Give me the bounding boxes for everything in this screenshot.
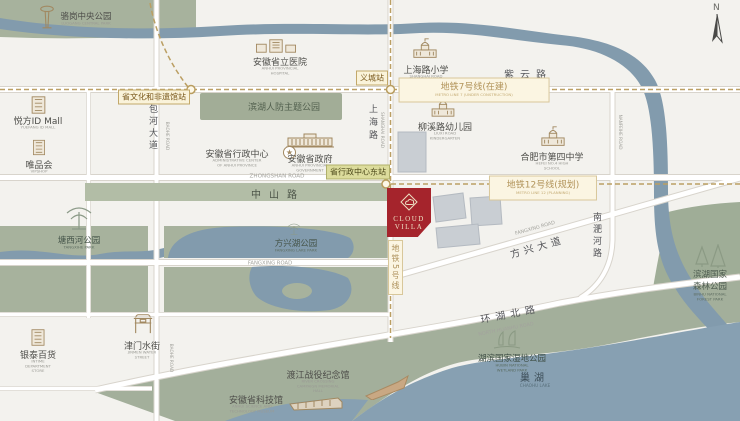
yuefang-mall-label-en: YUEFANG ID MALL [16,125,60,130]
forest-park-label-en: BINHU NATIONAL FOREST PARK [690,292,730,302]
intime-store-icon [29,328,47,347]
yuefang-mall-icon [29,95,48,115]
metro-line7-en: METRO LINE 7 (UNDER CONSTRUCTION) [435,93,512,97]
forest-park-label: 滨湖国家森林公园 [691,268,729,292]
tangxihe-park-label-en: TANGXIHE PARK [57,245,101,250]
jinmen-street-label-en: JINMEN WATER STREET [126,350,159,360]
map-base-graphics [0,0,740,421]
chaohu-lake-label-en: CHAOHU LAKE [520,384,550,389]
station-wenhua-badge: 省文化和非遗馆站 [118,90,190,105]
fangxinghu-park-label-en: FANGXING LAKE PARK [271,248,321,253]
hospital-label-en: ANHUI PROVINCIAL HOSPITAL [258,66,302,76]
intime-store-label-en: INTIME DEPARTMENT STORE [19,359,58,373]
luogang-park-label-en: LUOGANG CENTRAL PARK [56,21,117,26]
cloud-villa-logo-icon [400,193,418,211]
metro-line12-zh: 地铁12号线(规划) [494,178,592,191]
nanfeihe-road-label: 南淝河路 [590,212,603,260]
zhongshan-road-label-en: ZHONGSHAN ROAD [250,173,305,179]
baohe-road-label-en-2: BAOHE ROAD [169,344,174,372]
compass-n-label: N [713,3,720,13]
fangxinghu-pavilion-icon [283,221,305,236]
shanghai-road-label: 上海路 [366,104,379,143]
admin-center-label-en: ADMINISTRATIVE CENTER OF ANHUI PROVINCE [211,158,263,168]
station-yicheng-badge: 义城站 [356,71,388,86]
memorial-hall-label-en: RIVER CROSSING CAMPAIGN MEMORIAL HALL [293,379,343,393]
cloud-villa-badge: CLOUD VILLA [387,188,431,237]
tangxihe-pavilion-icon [64,202,94,232]
cloud-villa-text-line1: CLOUD [387,215,431,223]
luogang-tower-icon [38,2,56,32]
no4-school-label-en: HEFEI NO.4 HIGH SCHOOL [533,161,572,171]
shanghai-road-label-en: SHANGHAI ROAD [380,112,385,148]
metro-line12-en: METRO LINE 12 (PLANNING) [516,191,570,195]
nanfeihe-road-label-en: NANFEIHE ROAD [618,115,623,150]
metro-line12-label: 地铁12号线(规划) METRO LINE 12 (PLANNING) [489,176,597,201]
chaohu-lake-label: 巢湖 [520,369,548,384]
fangxing-road-label-en: FANGXING ROAD [248,260,292,266]
no4-school-icon [540,126,566,148]
government-icon [286,132,334,148]
zhongshan-road-label: 中山路 [251,186,305,201]
memorial-hall-icon [364,374,410,400]
primary-school-icon [412,38,438,60]
location-map[interactable]: ★ 骆岗中央公园 LUOGANG CENTRAL PARK 滨湖人防主题公园 塘… [0,0,740,421]
science-museum-label-en: ANHUI SCIENCE AND TECHNOLOGY MUSEUM [227,404,277,414]
vipshop-label-en: VIPSHOP [23,169,56,174]
metro-line5-label: 地铁5号线 [388,240,403,295]
metro-line7-zh: 地铁7号线(在建) [404,80,545,93]
forest-trees-icon [693,244,727,268]
station-xingzheng-badge: 省行政中心东站 [326,165,390,180]
compass-needle-icon [707,14,727,46]
hospital-icon [252,38,300,54]
metro-line7-label: 地铁7号线(在建) METRO LINE 7 (UNDER CONSTRUCTI… [399,78,550,103]
baohe-road-label: 包河大道 [146,104,159,152]
vipshop-icon [31,138,47,157]
baohe-road-label-en: BAOHE ROAD [165,122,170,150]
renfang-park-label: 滨湖人防主题公园 [248,100,320,113]
kindergarten-label-en: LIUXI ROAD KINDERGARTEN [423,131,467,141]
jinmen-arch-icon [132,310,154,336]
